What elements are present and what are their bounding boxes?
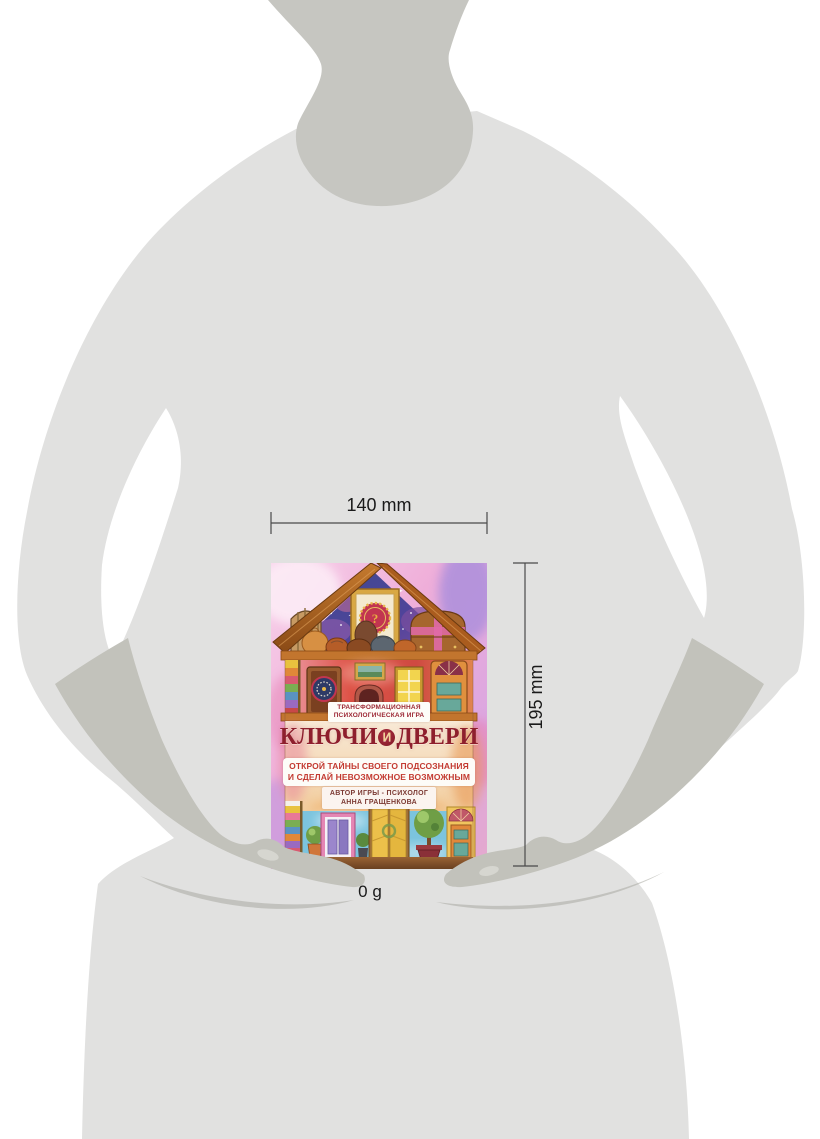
hands-layer [0, 0, 820, 1139]
size-reference-figure: ? [0, 0, 820, 1139]
left-forearm-hand [55, 638, 365, 887]
width-label: 140 mm [271, 495, 487, 516]
right-forearm-hand [444, 638, 764, 887]
weight-label: 0 g [330, 882, 410, 902]
height-label: 195 mm [526, 657, 546, 737]
